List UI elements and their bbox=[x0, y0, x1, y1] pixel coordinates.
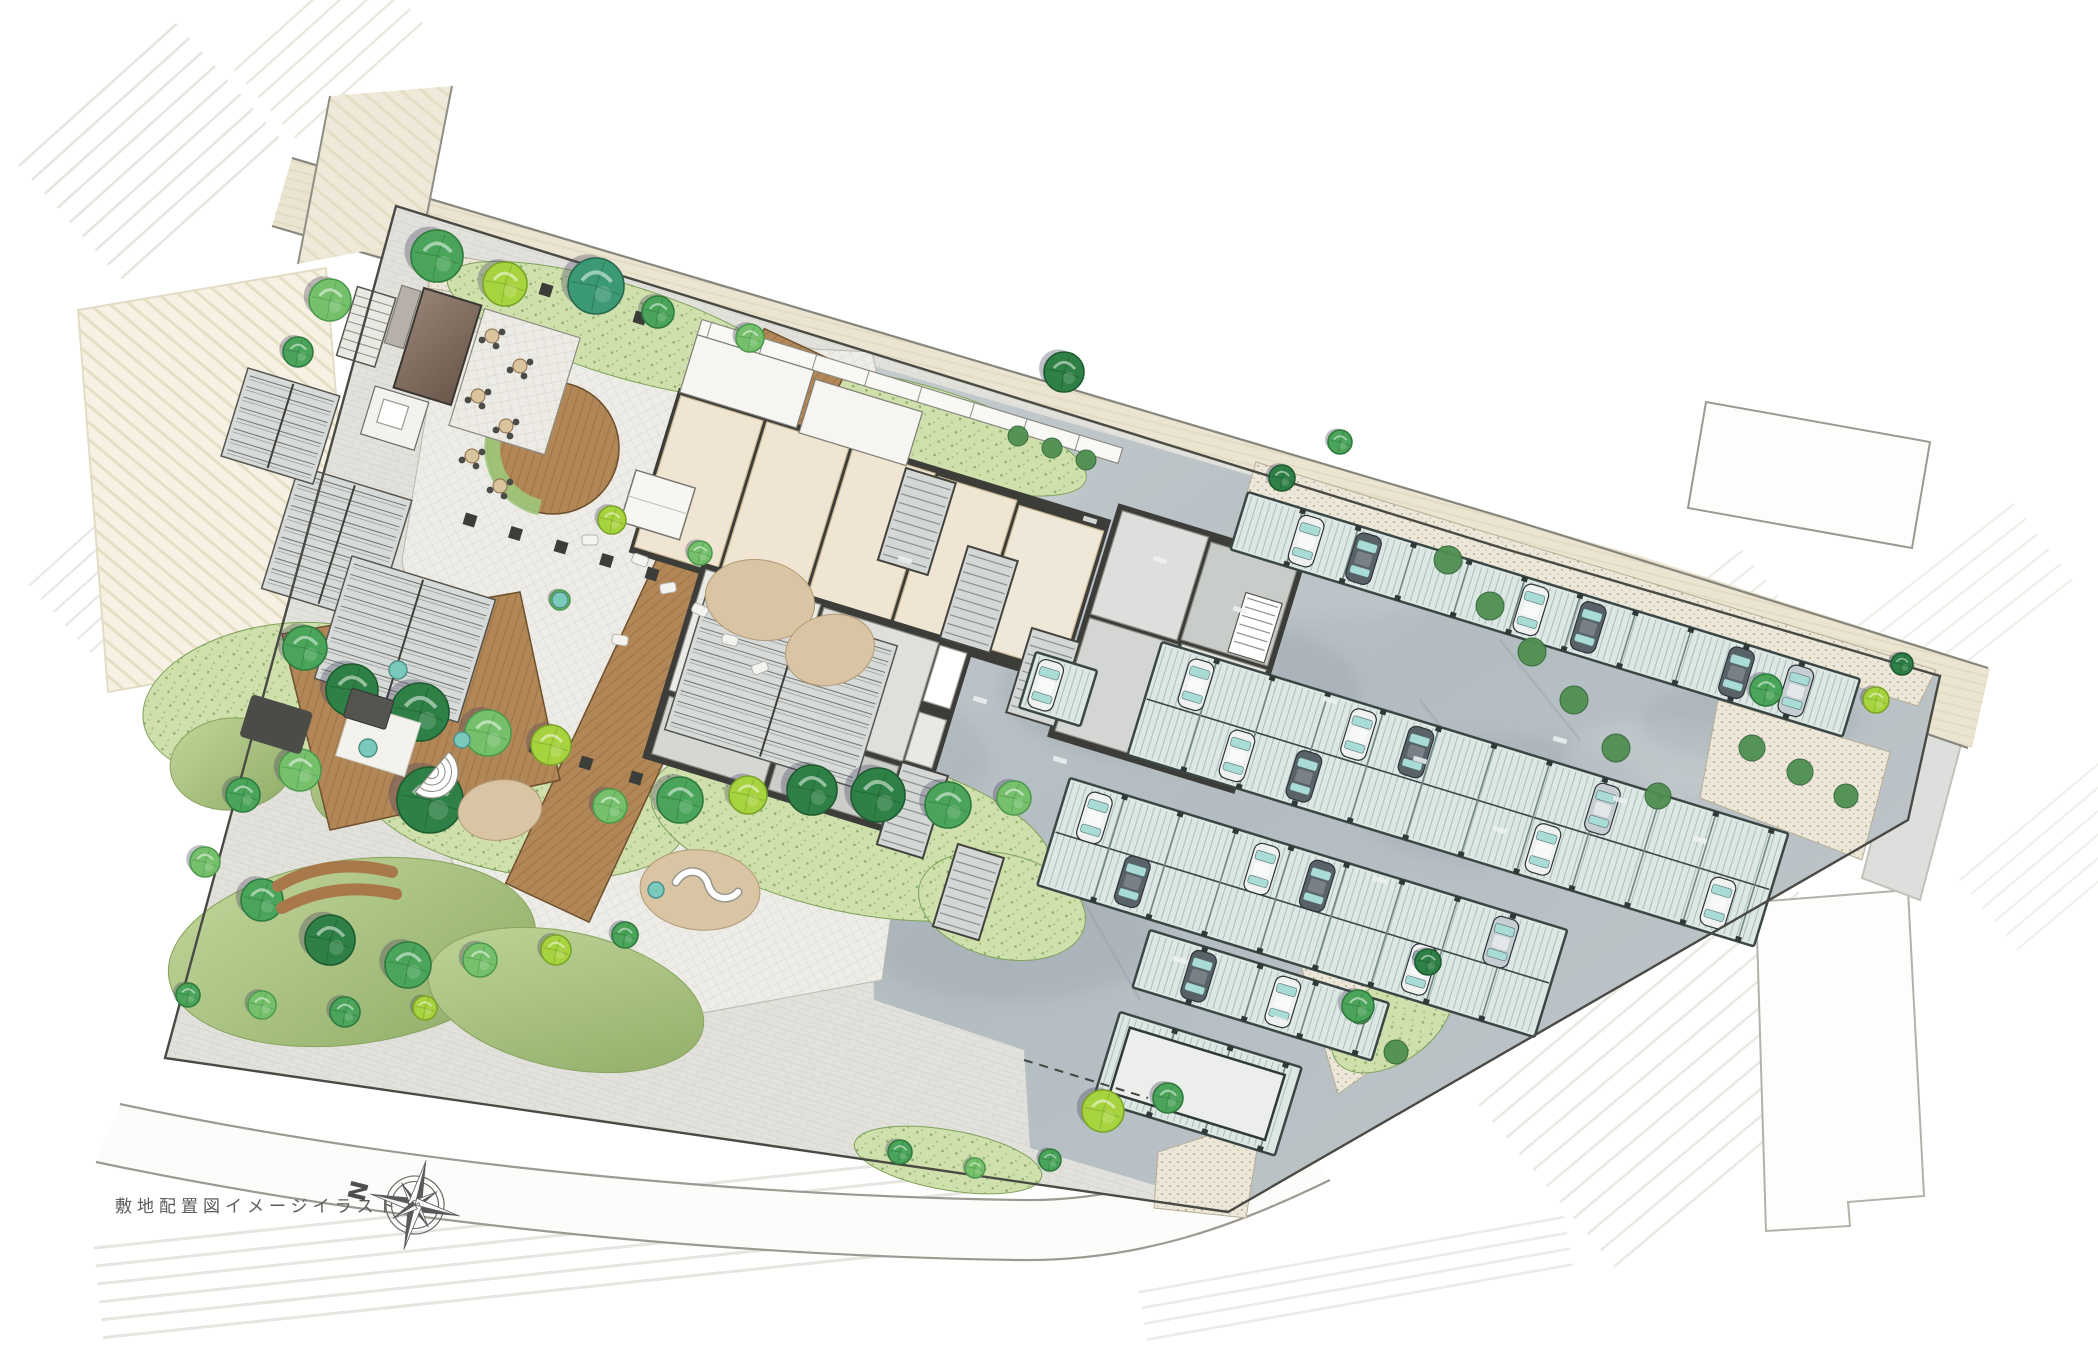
site-plan-illustration: 敷地配置図イメージイラスト N bbox=[0, 0, 2098, 1356]
hedge-shrub bbox=[1518, 638, 1546, 666]
hedge-shrub bbox=[1384, 1040, 1408, 1064]
hedge-shrub bbox=[1645, 783, 1671, 809]
hedge-shrub bbox=[1476, 592, 1504, 620]
round-table bbox=[648, 882, 664, 898]
hedge-shrub bbox=[1560, 686, 1588, 714]
cafe-table bbox=[499, 419, 513, 433]
tree bbox=[173, 981, 200, 1007]
neighbor-lot bbox=[1756, 890, 1924, 1231]
hedge-shrub bbox=[1787, 759, 1813, 785]
round-table bbox=[454, 732, 470, 748]
hedge-shrub bbox=[1602, 734, 1630, 762]
stepping-stone bbox=[659, 582, 676, 595]
stepping-stone bbox=[611, 634, 628, 647]
pencil-stroke-set bbox=[20, 24, 278, 277]
hedge-shrub bbox=[1008, 426, 1028, 446]
tree bbox=[1325, 428, 1352, 454]
round-table bbox=[389, 661, 407, 679]
round-table bbox=[552, 592, 568, 608]
cafe-table bbox=[465, 449, 479, 463]
cafe-table bbox=[471, 389, 485, 403]
cafe-table bbox=[485, 329, 499, 343]
cafe-table bbox=[493, 479, 507, 493]
hedge-shrub bbox=[1434, 546, 1462, 574]
hedge-shrub bbox=[1042, 438, 1062, 458]
pencil-stroke-set bbox=[1140, 1217, 1572, 1339]
pencil-stroke-set bbox=[1960, 751, 2098, 949]
hedge-shrub bbox=[1834, 784, 1858, 808]
stepping-stone bbox=[582, 535, 598, 545]
neighbor-lot bbox=[1688, 402, 1930, 548]
round-table bbox=[359, 739, 377, 757]
tree bbox=[186, 845, 220, 877]
cafe-table bbox=[513, 359, 527, 373]
hedge-shrub bbox=[1076, 450, 1096, 470]
hedge-shrub bbox=[1739, 735, 1765, 761]
site-plan-svg: 敷地配置図イメージイラスト N bbox=[0, 0, 2098, 1356]
